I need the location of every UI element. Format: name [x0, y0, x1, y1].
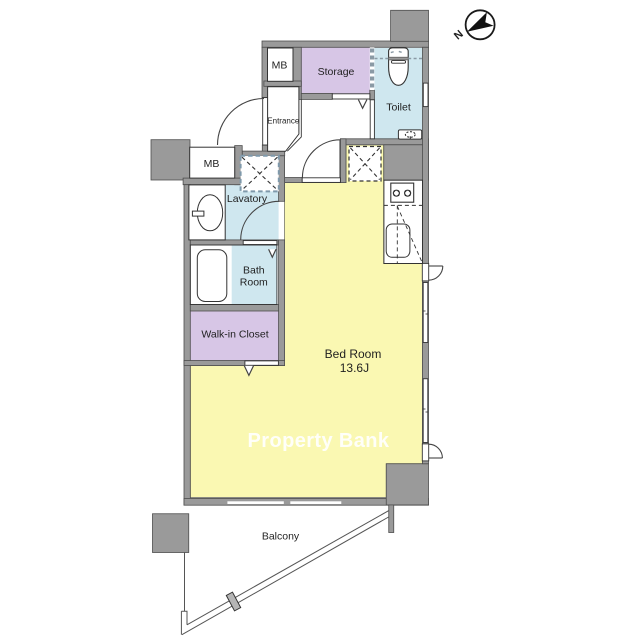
svg-text:Toilet: Toilet — [386, 102, 411, 114]
svg-text:Bed Room: Bed Room — [325, 347, 382, 361]
svg-text:13.6J: 13.6J — [340, 361, 369, 375]
svg-text:Lavatory: Lavatory — [227, 193, 268, 205]
svg-text:Storage: Storage — [318, 66, 355, 78]
svg-text:MB: MB — [272, 60, 288, 72]
svg-text:Room: Room — [240, 277, 268, 289]
svg-text:MB: MB — [204, 158, 220, 170]
svg-text:Entrance: Entrance — [267, 117, 300, 126]
svg-text:Balcony: Balcony — [262, 531, 300, 543]
svg-text:Bath: Bath — [243, 265, 265, 277]
svg-text:Property Bank: Property Bank — [248, 430, 390, 452]
svg-text:Walk-in Closet: Walk-in Closet — [201, 329, 268, 341]
